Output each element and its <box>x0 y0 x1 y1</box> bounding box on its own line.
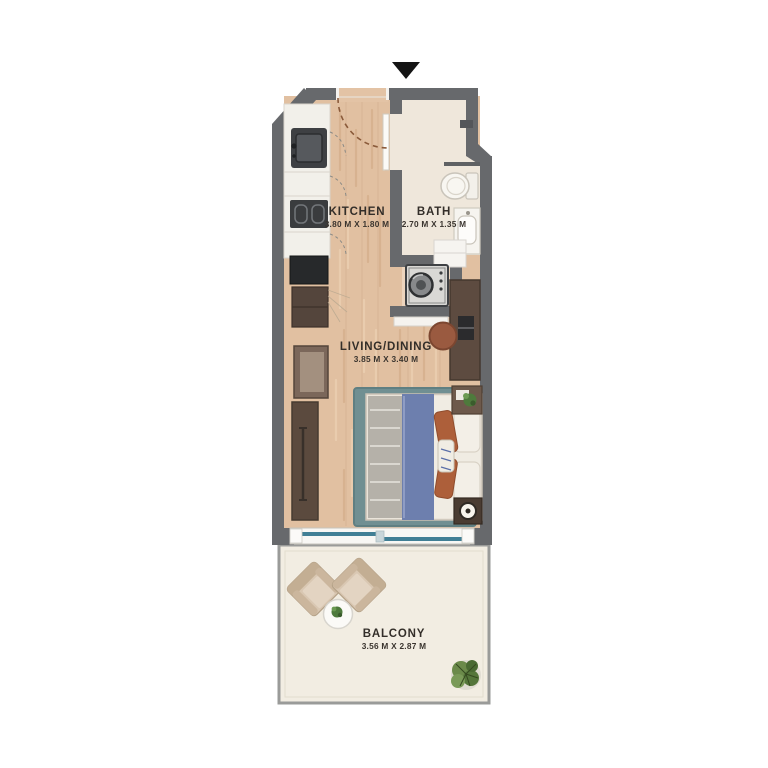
room-label-balcony: BALCONY 3.56 M X 2.87 M <box>362 628 427 651</box>
bath-wall-hook <box>460 120 473 128</box>
svg-text:3.56 M X 2.87 M: 3.56 M X 2.87 M <box>362 641 427 651</box>
ottoman <box>294 346 328 398</box>
svg-text:BALCONY: BALCONY <box>363 628 425 640</box>
svg-text:2.70 M X 1.35 M: 2.70 M X 1.35 M <box>402 219 467 229</box>
room-label-kitchen: KITCHEN 3.80 M X 1.80 M <box>325 206 390 229</box>
washing-machine <box>406 265 448 306</box>
bed-blanket-blue <box>402 394 434 520</box>
svg-text:BATH: BATH <box>417 206 451 218</box>
table-plant <box>332 607 343 618</box>
stove <box>290 200 328 228</box>
floor-plan-drawing: KITCHEN 3.80 M X 1.80 M BATH 2.70 M X 1.… <box>0 0 768 768</box>
floor-plan: KITCHEN 3.80 M X 1.80 M BATH 2.70 M X 1.… <box>0 0 768 768</box>
balcony-table <box>324 600 353 629</box>
kitchen-sink <box>291 128 327 168</box>
svg-text:LIVING/DINING: LIVING/DINING <box>340 341 432 353</box>
bath-toilet <box>441 173 478 199</box>
kitchen-counter <box>284 104 330 258</box>
svg-text:3.85 M X 3.40 M: 3.85 M X 3.40 M <box>354 354 419 364</box>
plant-side-table <box>452 386 482 414</box>
sliding-window <box>290 528 474 544</box>
bath-door-leaf <box>383 114 389 170</box>
svg-text:3.80 M X 1.80 M: 3.80 M X 1.80 M <box>325 219 390 229</box>
refrigerator <box>290 256 328 284</box>
svg-text:KITCHEN: KITCHEN <box>329 206 386 218</box>
desk-chair <box>430 323 457 350</box>
nightstand-lamp <box>454 498 482 524</box>
wardrobe <box>292 402 318 520</box>
laundry-cabinet <box>434 240 466 267</box>
bath-ledge <box>444 162 480 166</box>
corner-plant <box>451 660 481 690</box>
bed-throw-gray <box>368 396 402 518</box>
room-label-living-dining: LIVING/DINING 3.85 M X 3.40 M <box>340 341 432 364</box>
entrance-arrow-icon <box>392 62 420 79</box>
